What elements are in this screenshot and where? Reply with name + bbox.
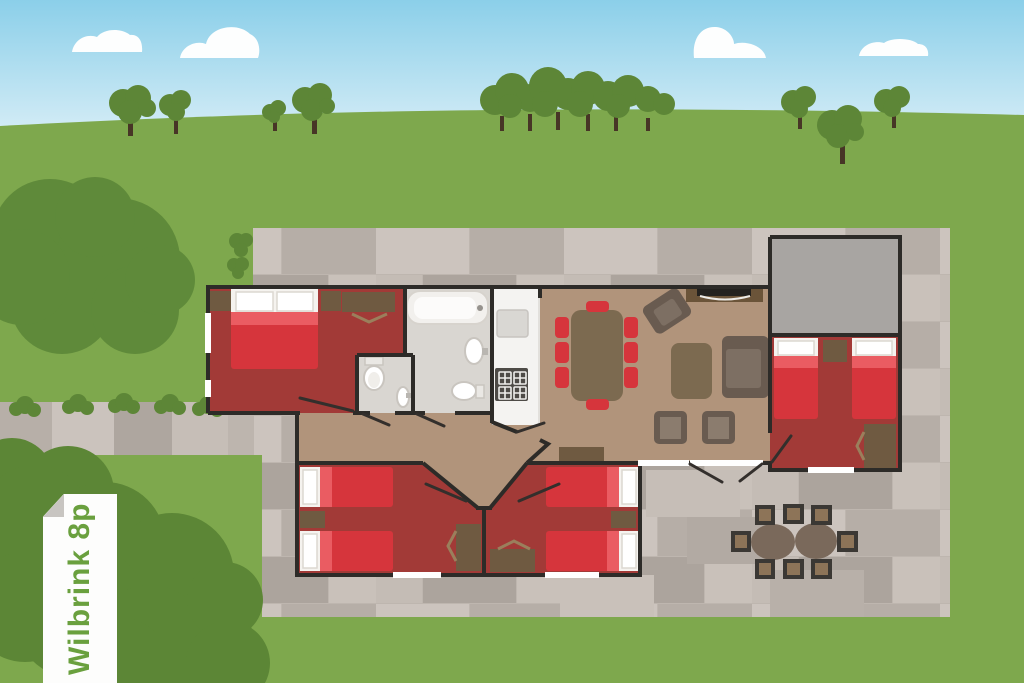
pillow <box>622 534 636 568</box>
wardrobe <box>342 292 395 312</box>
coffee-table <box>671 343 712 399</box>
window <box>638 460 689 466</box>
single-bed <box>546 531 639 571</box>
blanket-fold <box>231 312 318 325</box>
single-bed <box>852 338 896 419</box>
single-bed <box>774 338 818 419</box>
toilet-tank <box>476 385 484 398</box>
toilet-icon <box>452 382 476 400</box>
storage-room-floor <box>770 237 900 335</box>
wardrobe <box>490 549 535 572</box>
toilet-seat <box>368 372 380 388</box>
nightstand <box>823 340 847 362</box>
tap-icon <box>406 393 411 398</box>
pillow <box>856 341 892 355</box>
wardrobe <box>456 524 481 571</box>
kitchen-sink-icon <box>497 310 528 337</box>
pillow <box>277 292 313 311</box>
holiday-home-map: Wilbrink 8p <box>0 0 1024 683</box>
wardrobe <box>864 424 896 468</box>
kitchen-counter-edge <box>538 287 540 425</box>
kitchen-floor <box>492 287 540 425</box>
window <box>393 572 441 578</box>
bathtub-basin <box>414 297 476 319</box>
pillow <box>303 470 317 504</box>
nightstand <box>611 511 636 528</box>
double-bed <box>231 289 318 369</box>
nightstand <box>300 511 325 528</box>
pillow <box>236 292 273 311</box>
nightstand <box>210 291 231 311</box>
door-threshold <box>690 460 763 466</box>
pillow <box>303 534 317 568</box>
window <box>808 467 854 473</box>
window <box>205 313 211 353</box>
nightstand <box>321 291 341 311</box>
window <box>545 572 599 578</box>
terrace-table <box>795 523 837 559</box>
single-bed <box>546 467 639 507</box>
tap-icon <box>482 348 488 355</box>
single-bed <box>300 531 393 571</box>
accommodation-name-label: Wilbrink 8p <box>43 494 117 683</box>
pillow <box>622 470 636 504</box>
washbasin-icon <box>465 338 483 364</box>
pillow <box>778 341 814 355</box>
hall-cabinet <box>559 447 604 462</box>
tap-icon <box>477 305 483 311</box>
toilet-tank <box>365 357 383 365</box>
illustration-canvas <box>0 0 1024 683</box>
window <box>205 380 211 397</box>
terrace-table <box>751 524 795 560</box>
single-bed <box>300 467 393 507</box>
dining-table <box>571 310 623 401</box>
sofa <box>722 336 769 398</box>
